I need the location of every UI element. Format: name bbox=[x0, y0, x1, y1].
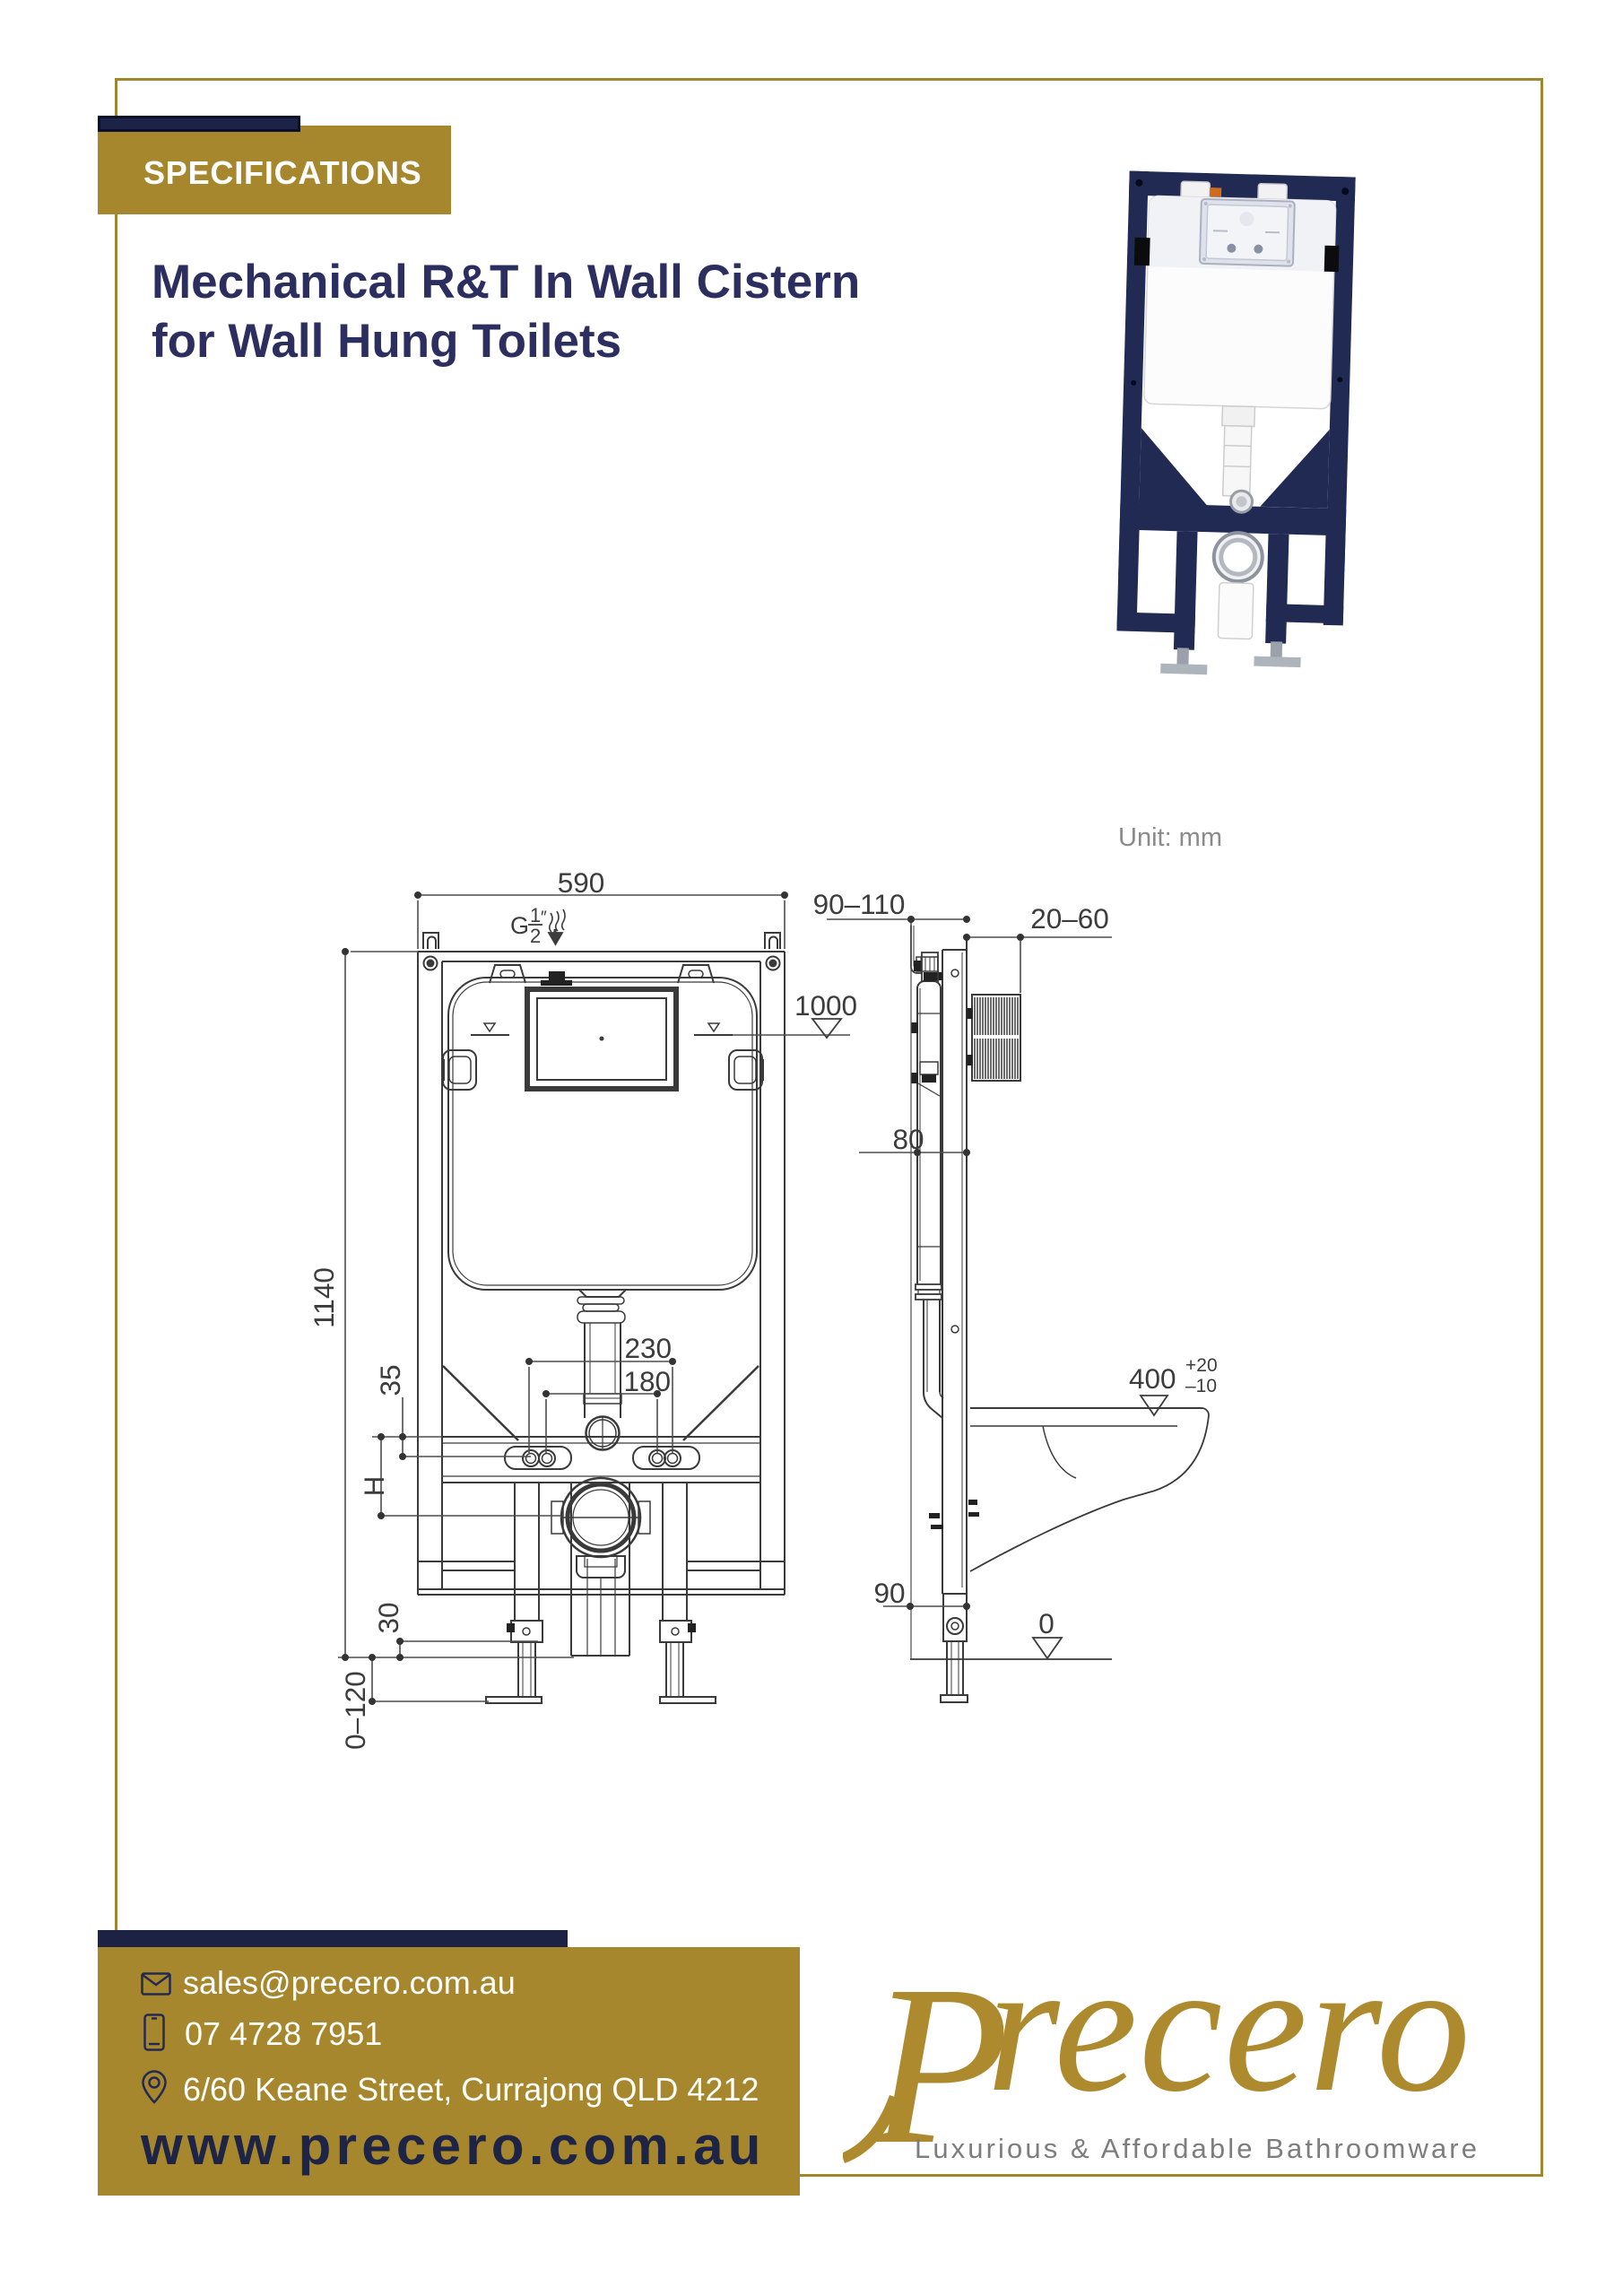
svg-text:1: 1 bbox=[530, 904, 541, 926]
svg-text:G: G bbox=[510, 912, 529, 939]
svg-text:80: 80 bbox=[892, 1123, 924, 1155]
svg-text:30: 30 bbox=[372, 1602, 404, 1633]
svg-text:+20: +20 bbox=[1185, 1355, 1218, 1376]
svg-text:230: 230 bbox=[624, 1332, 672, 1364]
svg-text:180: 180 bbox=[623, 1365, 671, 1397]
svg-text:400: 400 bbox=[1129, 1362, 1176, 1395]
svg-text:590: 590 bbox=[558, 866, 605, 899]
svg-text:H: H bbox=[358, 1476, 390, 1497]
svg-text:90–110: 90–110 bbox=[813, 888, 906, 920]
svg-text:0: 0 bbox=[1038, 1607, 1055, 1639]
svg-text:1140: 1140 bbox=[308, 1267, 340, 1328]
svg-text:recero: recero bbox=[986, 1955, 1472, 2131]
svg-text:–10: –10 bbox=[1185, 1376, 1217, 1396]
svg-text:35: 35 bbox=[374, 1364, 406, 1396]
svg-text:2: 2 bbox=[530, 925, 541, 947]
svg-text:90: 90 bbox=[873, 1577, 905, 1609]
svg-text:20–60: 20–60 bbox=[1030, 902, 1109, 935]
svg-text:1000: 1000 bbox=[794, 989, 857, 1022]
svg-text:0–120: 0–120 bbox=[339, 1671, 371, 1750]
svg-text:Luxurious & Affordable Bathroo: Luxurious & Affordable Bathroomware bbox=[915, 2133, 1480, 2164]
